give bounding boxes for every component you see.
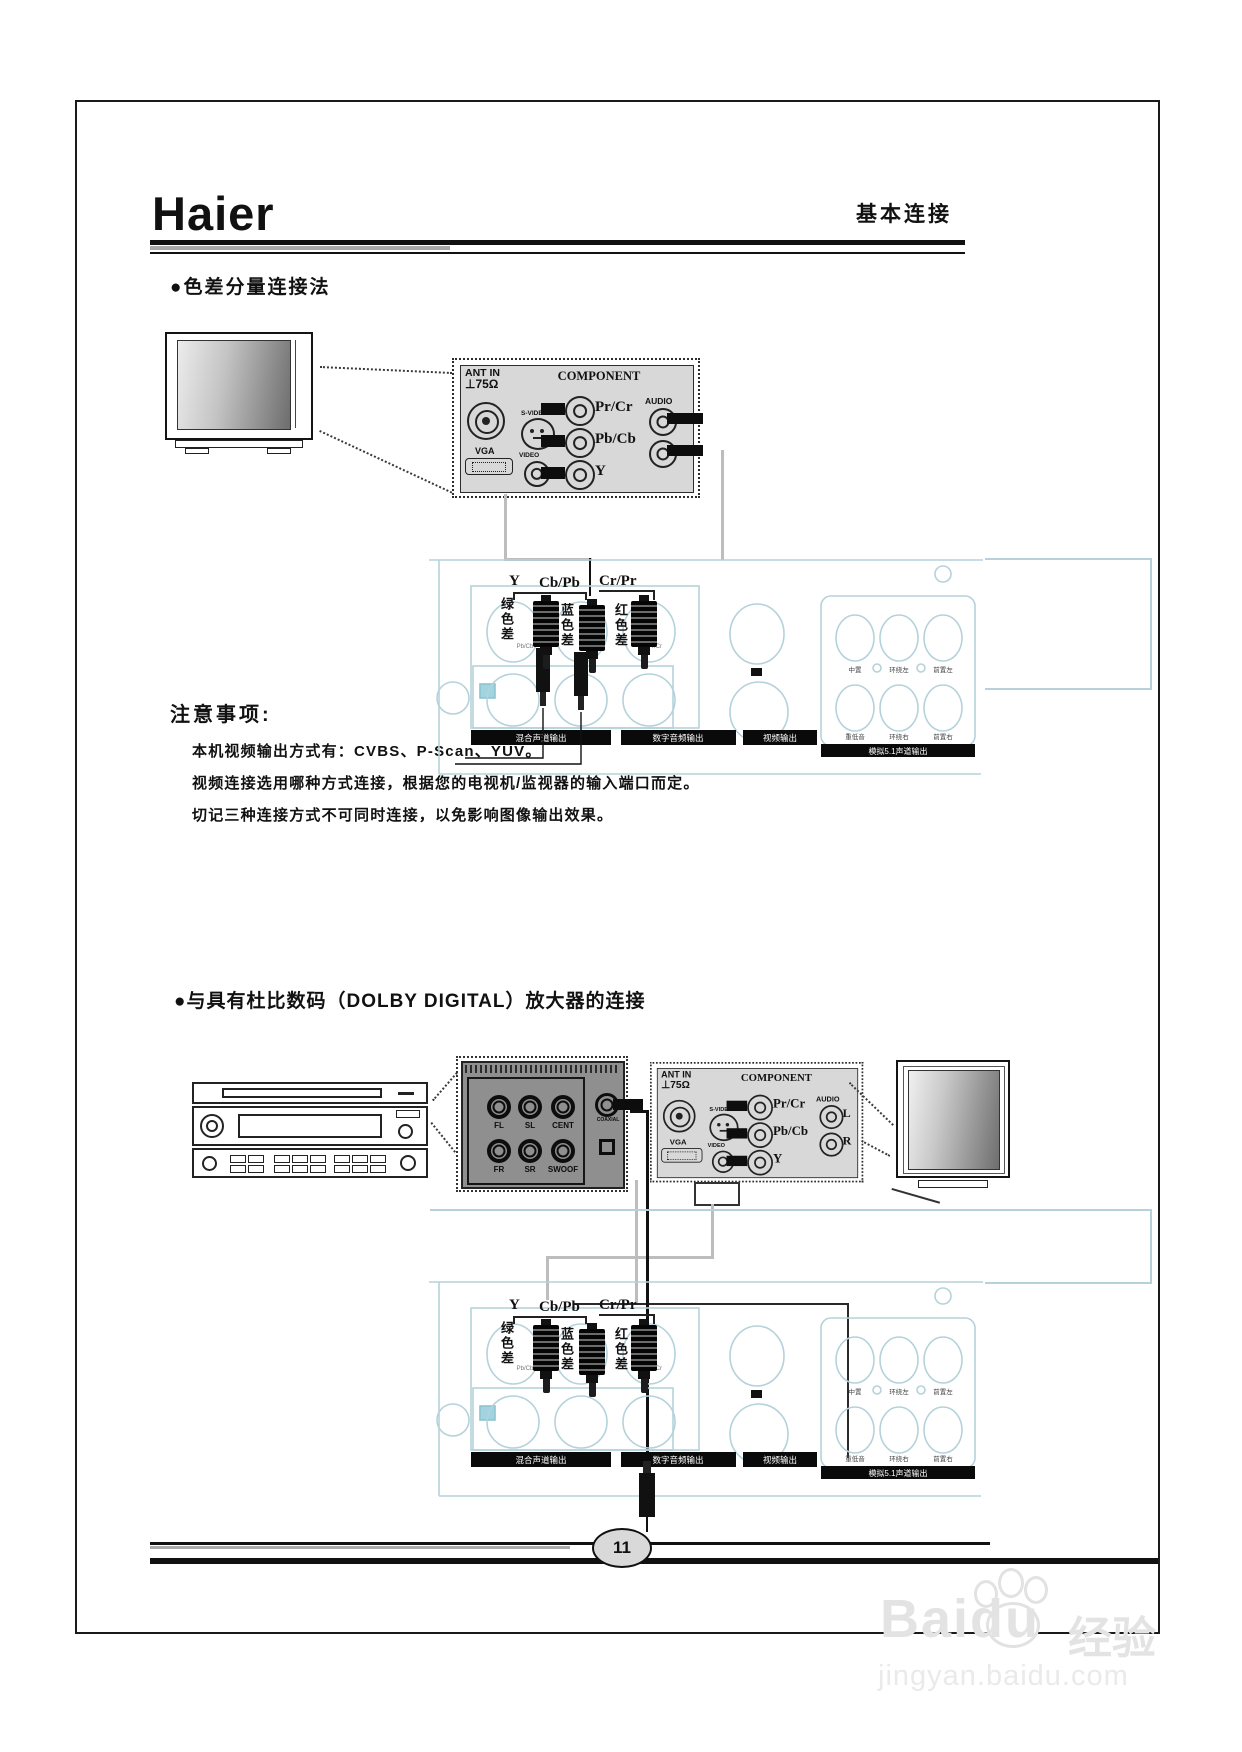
swoof-label: SWOOF	[548, 1165, 578, 1174]
amp-bottom-section	[192, 1148, 428, 1178]
cr-cable-label: Cr/Pr	[599, 573, 636, 590]
audio-r-label: R	[843, 1135, 852, 1149]
cr-cable-cn-label: 红色差	[611, 603, 630, 648]
scanned-manual-page: { "colors": {"panel_gray":"#d8d8d8","dar…	[0, 0, 1242, 1752]
strip3-label: 视频输出	[763, 733, 797, 743]
amp-button	[310, 1165, 326, 1173]
rca-plug	[541, 435, 565, 447]
label-bracket	[599, 1314, 655, 1316]
tv-control-strip	[295, 340, 306, 428]
coaxial-label: COAXIAL	[597, 1117, 620, 1123]
pr-jack	[565, 396, 595, 426]
header-rule-top	[150, 240, 965, 245]
pb-jack	[565, 428, 595, 458]
s-video-pin	[717, 1123, 720, 1126]
audio-r-pin	[826, 1139, 837, 1150]
sr-jack	[518, 1139, 542, 1163]
impedance-text: ⊥75Ω	[661, 1078, 690, 1090]
ch-fr-label: 前置右	[933, 1454, 953, 1463]
baidu-jingyan-watermark: Baidu 经验 jingyan.baidu.com	[868, 1566, 1188, 1716]
sl-label: SL	[525, 1121, 535, 1130]
optical-port	[599, 1139, 615, 1155]
amp-button	[230, 1155, 246, 1163]
ch-fl-label: 前置左	[933, 1387, 953, 1396]
pb-label: Pb/Cb	[595, 431, 636, 448]
rca-plug	[727, 1101, 748, 1111]
component-title: COMPONENT	[537, 369, 661, 384]
amp-button	[292, 1155, 308, 1163]
audio-l-pin	[826, 1111, 837, 1122]
cb-rca-plug	[579, 1323, 605, 1397]
audio-l-plug	[667, 413, 703, 424]
audio-l-label: L	[843, 1108, 851, 1122]
cb-rca-plug	[579, 599, 605, 673]
footer-rule-top	[150, 1542, 990, 1545]
sr-label: SR	[524, 1165, 535, 1174]
y-jack-pin	[573, 468, 587, 482]
fl-jack	[487, 1095, 511, 1119]
amp-button-round	[202, 1156, 217, 1171]
rf-jack-pin	[482, 417, 490, 425]
coaxial-plug	[613, 1099, 643, 1110]
cr-cable-cn-label: 红色差	[611, 1327, 630, 1372]
y-cable-cn-label: 绿色差	[497, 1321, 516, 1366]
amp-disc-tray	[222, 1088, 382, 1098]
amp-button	[352, 1155, 368, 1163]
y-rca-plug	[533, 1319, 559, 1393]
component-jack-panel-2: ANT IN ⊥75Ω VGA S-VIDEO VIDEO COMPONENT …	[650, 1062, 863, 1182]
video-label: VIDEO	[708, 1143, 725, 1149]
cr-cable-label: Cr/Pr	[599, 1297, 636, 1314]
amp-button	[292, 1165, 308, 1173]
pr-label: Pr/Cr	[773, 1097, 805, 1112]
pb-jack	[747, 1122, 773, 1148]
y-jack	[565, 460, 595, 490]
component-jack-panel-1: ANT IN ⊥75Ω VGA S-VIDEO VIDEO COMPONENT …	[452, 358, 700, 498]
audio-r-jack	[819, 1133, 843, 1157]
y-cable-label: Y	[509, 1297, 520, 1314]
label-bracket	[513, 592, 585, 594]
ch-fl-label: 前置左	[933, 665, 953, 674]
sl-jack	[518, 1095, 542, 1119]
strip51-label: 模拟5.1声道输出	[868, 746, 927, 756]
cr-rca-plug	[631, 1319, 657, 1393]
impedance-text: ⊥75Ω	[465, 377, 498, 391]
pr-jack	[747, 1095, 773, 1121]
tv-base	[175, 440, 303, 448]
pb-label: Pb/Cb	[773, 1125, 808, 1140]
fr-jack	[487, 1139, 511, 1163]
panel-edge-line	[430, 1209, 1152, 1211]
ch-sr-label: 环绕右	[889, 732, 909, 741]
rca-plug	[541, 467, 565, 479]
amp-button	[248, 1165, 264, 1173]
audio-r-plug	[667, 445, 703, 456]
tv-front-illustration	[165, 332, 317, 464]
ch-sl-label: 环绕左	[889, 1387, 909, 1396]
ch-sl-label: 环绕左	[889, 665, 909, 674]
amp-button	[274, 1165, 290, 1173]
component-cable-plugs-1: Y Cb/Pb Cr/Pr 绿色差 蓝色差 红色差	[495, 573, 665, 691]
amplifier-illustration	[192, 1082, 432, 1182]
vga-port-pins	[472, 462, 506, 472]
y-label: Y	[773, 1152, 782, 1167]
panel-edge-line	[1150, 558, 1152, 690]
amp-display	[238, 1114, 382, 1138]
panel-hatch-strip	[465, 1065, 619, 1073]
component-cable-plugs-2: Y Cb/Pb Cr/Pr 绿色差 蓝色差 红色差	[495, 1297, 665, 1415]
pr-label: Pr/Cr	[595, 399, 632, 416]
tv-stand	[918, 1180, 988, 1188]
panel-body: ANT IN ⊥75Ω VGA S-VIDEO VIDEO COMPONENT …	[657, 1068, 858, 1178]
amp-button	[370, 1165, 386, 1173]
amp-small-knob	[398, 1124, 413, 1139]
footer-rule-bottom	[150, 1558, 1158, 1564]
section2-heading: ●与具有杜比数码（DOLBY DIGITAL）放大器的连接	[174, 986, 646, 1013]
amp-dash	[398, 1092, 414, 1095]
strip1-label: 混合声道输出	[515, 733, 566, 743]
ch-sub-label: 重低音	[845, 1454, 865, 1463]
ant-in-label: ANT IN ⊥75Ω	[661, 1071, 691, 1091]
amp-button	[310, 1155, 326, 1163]
y-label: Y	[595, 463, 606, 480]
audio-l-jack	[819, 1105, 843, 1129]
header-rule-gray	[150, 246, 450, 250]
cent-jack	[551, 1095, 575, 1119]
speaker-output-panel: FL SL CENT FR SR SWOOF COAXIAL	[456, 1056, 628, 1192]
ch-sr-label: 环绕右	[889, 1454, 909, 1463]
amp-button	[352, 1165, 368, 1173]
ch-center-label: 中置	[849, 1387, 863, 1396]
tv-screen	[908, 1070, 1000, 1170]
strip2-label: 数字音频输出	[652, 1455, 703, 1465]
fr-label: FR	[494, 1165, 505, 1174]
tv-foot-left	[185, 448, 209, 454]
pb-jack-pin	[754, 1129, 766, 1141]
pr-jack-pin	[754, 1102, 766, 1114]
ch-fr-label: 前置右	[933, 732, 953, 741]
amp-button	[370, 1155, 386, 1163]
amp-small-slot	[396, 1110, 420, 1118]
fl-label: FL	[494, 1121, 504, 1130]
y-cable-cn-label: 绿色差	[497, 597, 516, 642]
y-rca-plug	[533, 595, 559, 669]
panel-body: ANT IN ⊥75Ω VGA S-VIDEO VIDEO COMPONENT …	[460, 365, 694, 493]
vga-port	[465, 458, 513, 475]
label-bracket	[599, 590, 655, 592]
panel-edge-line	[985, 1282, 1152, 1284]
notes-heading: 注意事项:	[170, 698, 272, 727]
s-video-slot	[533, 437, 541, 439]
s-video-slot	[720, 1130, 727, 1132]
cable-line	[546, 1256, 714, 1259]
cable-line	[711, 1204, 714, 1258]
s-video-pin	[540, 429, 544, 433]
rf-antenna-jack	[663, 1100, 696, 1133]
audio-label: AUDIO	[816, 1095, 840, 1104]
y-jack-pin	[754, 1157, 766, 1169]
rca-plug	[727, 1156, 748, 1166]
vga-label: VGA	[670, 1138, 687, 1147]
vga-port	[661, 1148, 702, 1163]
rca-plug	[727, 1128, 748, 1138]
section1-heading: ●色差分量连接法	[170, 272, 330, 299]
cr-rca-plug	[631, 595, 657, 669]
amp-button-round	[400, 1155, 416, 1171]
cb-cable-cn-label: 蓝色差	[557, 603, 576, 648]
cb-cable-label: Cb/Pb	[539, 575, 580, 592]
tv-screen	[177, 340, 291, 430]
panel-edge-line	[985, 688, 1152, 690]
panel-edge-line	[1150, 1209, 1152, 1284]
watermark-url: jingyan.baidu.com	[878, 1660, 1129, 1693]
tv-foot-right	[267, 448, 291, 454]
amp-button	[334, 1165, 350, 1173]
s-video-pin	[530, 429, 534, 433]
audio-label: AUDIO	[645, 396, 672, 406]
cb-cable-cn-label: 蓝色差	[557, 1327, 576, 1372]
panel-edge-line	[985, 558, 1152, 560]
ch-sub-label: 重低音	[845, 732, 865, 741]
video-label: VIDEO	[519, 452, 539, 459]
tv-stand-curve	[891, 1188, 940, 1204]
audio-cable-line	[721, 450, 724, 560]
amp-knob-inner	[206, 1120, 218, 1132]
rf-antenna-jack	[467, 402, 505, 440]
amp-button	[230, 1165, 246, 1173]
strip2-label: 数字音频输出	[652, 733, 703, 743]
pr-jack-pin	[573, 404, 587, 418]
page-title: 基本连接	[856, 198, 952, 228]
y-jack	[747, 1150, 773, 1176]
rca-plug	[541, 403, 565, 415]
cb-cable-label: Cb/Pb	[539, 1299, 580, 1316]
strip3-label: 视频输出	[763, 1455, 797, 1465]
cable-junction-box	[694, 1182, 740, 1206]
ch-center-label: 中置	[849, 665, 863, 674]
s-video-pin	[726, 1123, 729, 1126]
vga-port-pins	[667, 1151, 696, 1160]
amp-button	[248, 1155, 264, 1163]
header-rule-bottom	[150, 252, 965, 254]
speaker-panel-body: FL SL CENT FR SR SWOOF COAXIAL	[461, 1061, 625, 1189]
haier-logo: Haier	[152, 186, 275, 241]
cent-label: CENT	[552, 1121, 574, 1130]
amp-button	[334, 1155, 350, 1163]
strip1-label: 混合声道输出	[515, 1455, 566, 1465]
tv-illustration-2	[896, 1060, 1016, 1210]
footer-rule-gray	[150, 1546, 570, 1549]
component-title: COMPONENT	[723, 1071, 830, 1084]
watermark-suffix: 经验	[1068, 1602, 1156, 1666]
label-bracket	[513, 1316, 585, 1318]
rf-jack-pin	[676, 1113, 683, 1120]
ant-in-label: ANT IN ⊥75Ω	[465, 368, 500, 391]
watermark-brand: Baidu	[880, 1588, 1040, 1650]
y-cable-label: Y	[509, 573, 520, 590]
amp-button	[274, 1155, 290, 1163]
pb-jack-pin	[573, 436, 587, 450]
swoof-jack	[551, 1139, 575, 1163]
strip51-label: 模拟5.1声道输出	[868, 1468, 927, 1478]
coaxial-plug-into-panel	[639, 1461, 655, 1532]
vga-label: VGA	[475, 446, 495, 456]
